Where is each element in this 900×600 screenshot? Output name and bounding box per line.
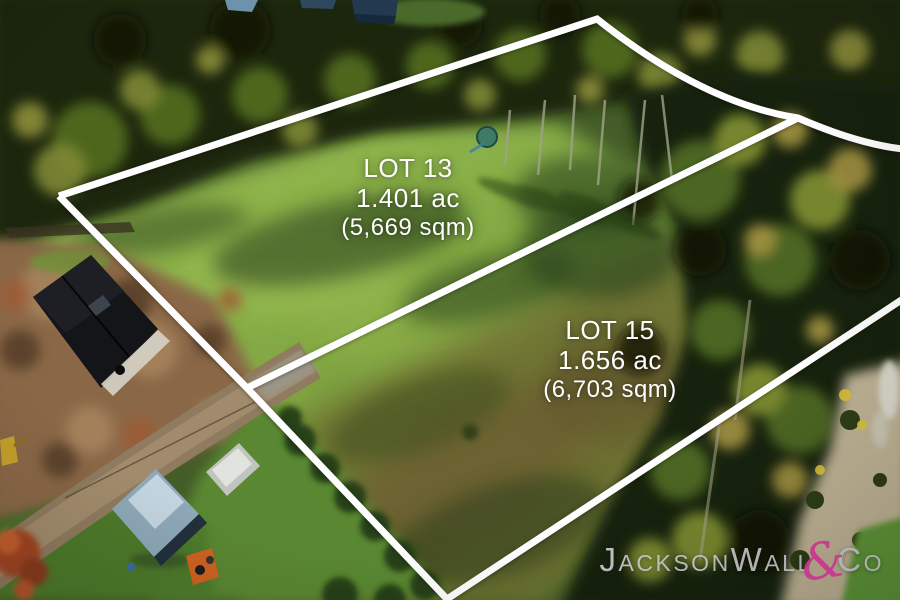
aerial-photo: LOT 13 1.401 ac (5,669 sqm) LOT 15 1.656… bbox=[0, 0, 900, 600]
lot15-name: LOT 15 bbox=[500, 315, 720, 345]
lot15-acres: 1.656 ac bbox=[500, 345, 720, 375]
lot13-name: LOT 13 bbox=[298, 153, 518, 183]
lot15-label: LOT 15 1.656 ac (6,703 sqm) bbox=[500, 315, 720, 405]
lot13-acres: 1.401 ac bbox=[298, 183, 518, 213]
brand-name: JacksonWall bbox=[600, 543, 813, 576]
lot15-sqm: (6,703 sqm) bbox=[500, 375, 720, 405]
brand-ampersand-icon: & bbox=[797, 533, 848, 589]
lot-boundary-overlay bbox=[0, 0, 900, 600]
brand-watermark: JacksonWall & Co bbox=[600, 529, 884, 579]
lot13-sqm: (5,669 sqm) bbox=[298, 213, 518, 243]
lot13-label: LOT 13 1.401 ac (5,669 sqm) bbox=[298, 153, 518, 243]
